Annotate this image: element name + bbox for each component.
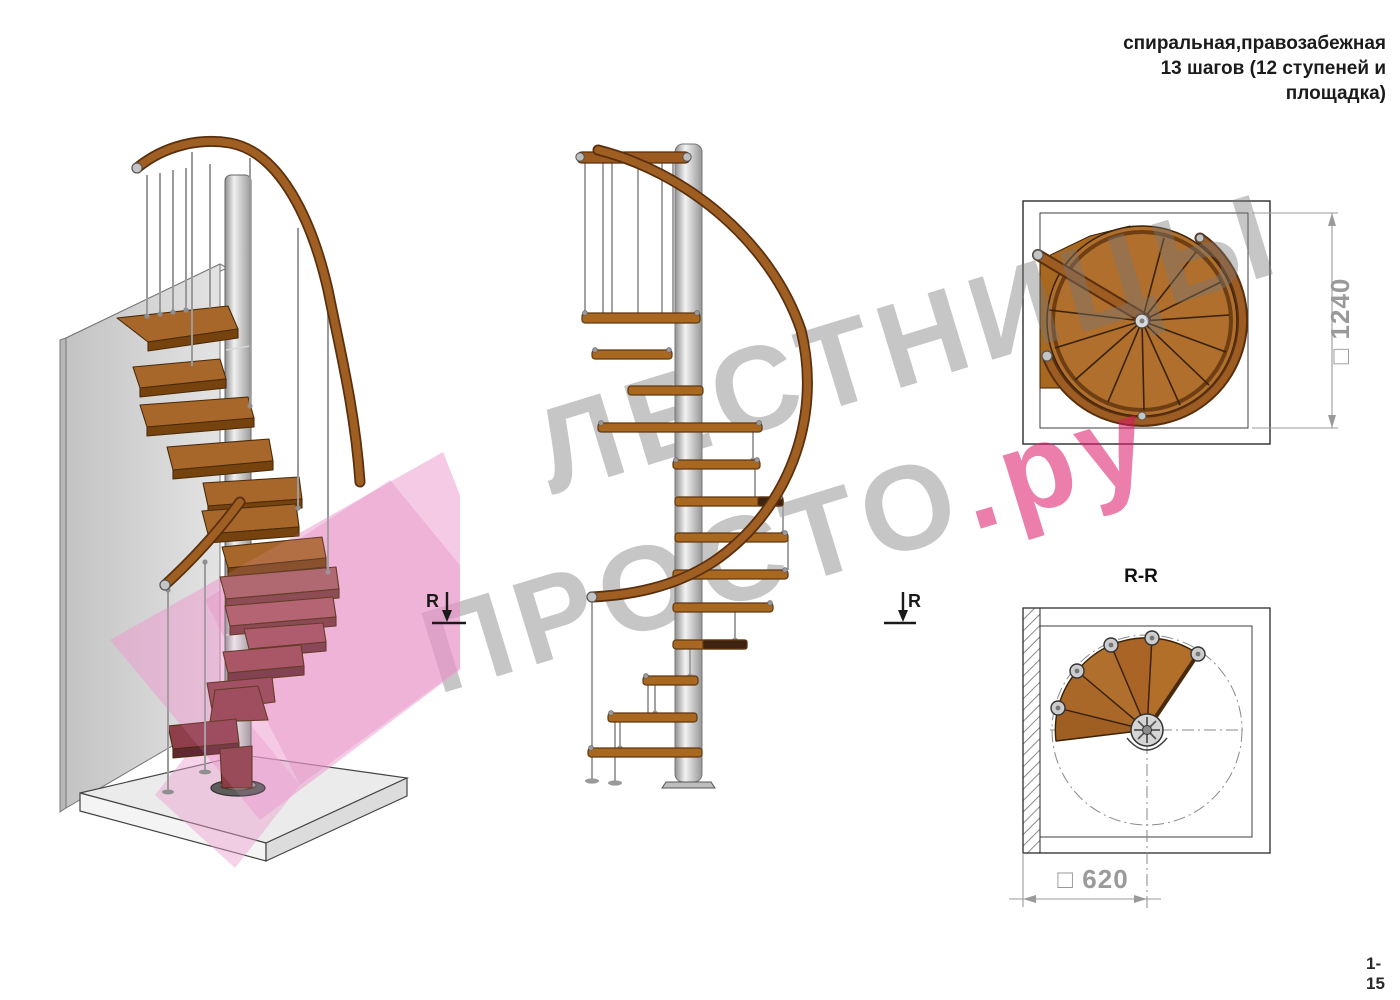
- elevation-pole-base: [662, 782, 715, 788]
- page-title-line: спиральная,правозабежная: [1123, 31, 1386, 56]
- page-number: 1-15: [1366, 954, 1400, 994]
- iso-view-drawing: [40, 130, 460, 870]
- section-marker-left-label: R: [426, 591, 439, 611]
- page-title-line: 13 шагов (12 ступеней и: [1123, 56, 1386, 81]
- plan-dimension-label: □ 1240: [1325, 278, 1355, 365]
- section-title: R-R: [1124, 566, 1158, 587]
- elevation-view-drawing: [535, 130, 925, 810]
- plan-view-drawing: □ 1240: [1005, 190, 1365, 460]
- section-wall-hatch: [1023, 608, 1040, 853]
- plan-rail-end-ferrule: [1033, 250, 1043, 260]
- elevation-handrail-end-cap: [587, 592, 597, 602]
- iso-baluster-foot: [162, 790, 174, 795]
- elevation-baluster-foot: [585, 778, 599, 783]
- plan-center-hub-dot: [1140, 319, 1145, 324]
- page-title: спиральная,правозабежная 13 шагов (12 ст…: [1123, 31, 1386, 106]
- plan-handrail-pin: [1138, 412, 1146, 420]
- page-title-line: площадка): [1123, 81, 1386, 106]
- plan-staircase: [1033, 226, 1242, 421]
- section-marker-left: R: [424, 588, 480, 634]
- section-marker-right-label: R: [908, 591, 921, 611]
- drawing-page: { "header": { "title_lines": [ "спиральн…: [0, 0, 1400, 1000]
- plan-handrail-end-cap: [1042, 351, 1052, 361]
- section-view-drawing: R-R: [1005, 558, 1365, 978]
- section-marker-right: R: [876, 586, 936, 634]
- elevation-landing: [582, 313, 700, 323]
- elevation-baluster-foot: [608, 780, 622, 785]
- iso-baluster-foot: [199, 770, 211, 775]
- section-dimension-label: □ 620: [1057, 864, 1128, 894]
- plan-handrail-pin: [1196, 234, 1204, 242]
